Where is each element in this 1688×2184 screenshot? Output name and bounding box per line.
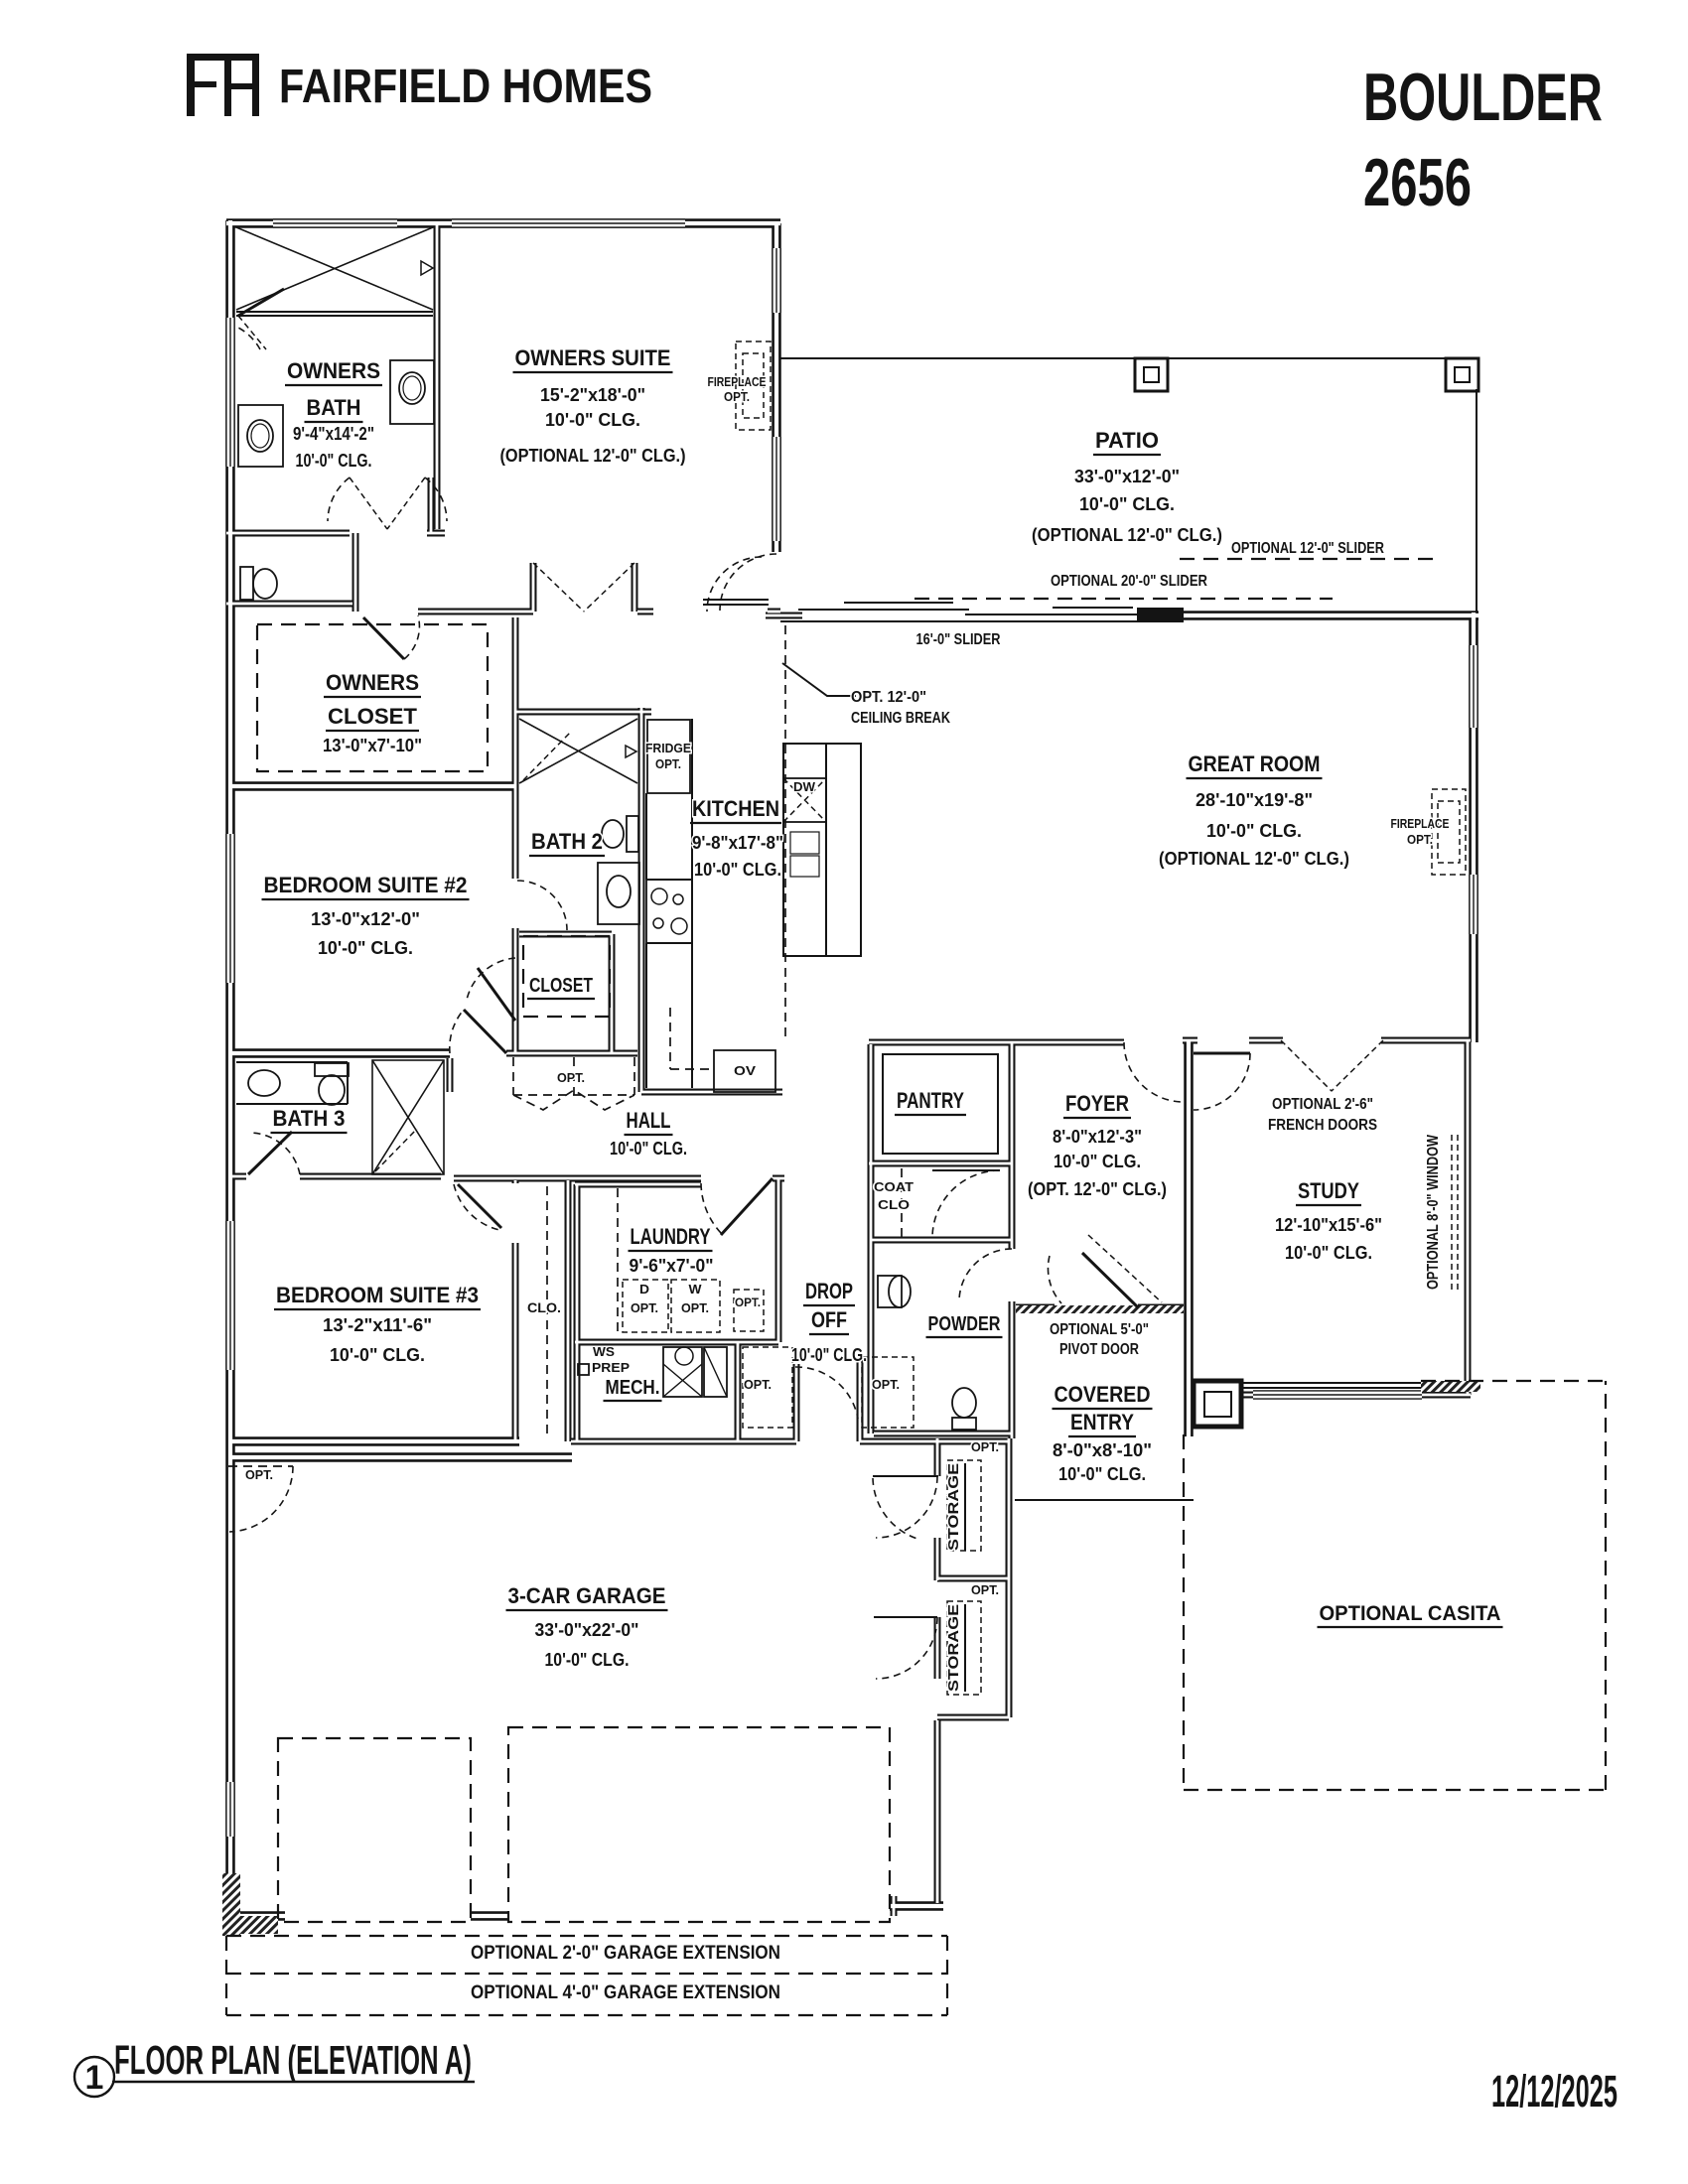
- svg-text:10'-0" CLG.: 10'-0" CLG.: [545, 1650, 630, 1670]
- svg-text:10'-0" CLG.: 10'-0" CLG.: [318, 938, 413, 958]
- svg-text:10'-0" CLG.: 10'-0" CLG.: [330, 1345, 425, 1365]
- svg-text:D: D: [639, 1282, 649, 1297]
- svg-text:STUDY: STUDY: [1298, 1178, 1359, 1203]
- svg-text:BATH 2: BATH 2: [531, 829, 603, 854]
- svg-text:FRENCH DOORS: FRENCH DOORS: [1268, 1117, 1377, 1134]
- svg-text:9'-4"x14'-2": 9'-4"x14'-2": [293, 424, 374, 444]
- svg-text:OPTIONAL 4'-0" GARAGE EXTENSIO: OPTIONAL 4'-0" GARAGE EXTENSION: [471, 1982, 780, 2003]
- svg-text:OPT.: OPT.: [724, 389, 750, 404]
- svg-text:OPTIONAL 2'-6": OPTIONAL 2'-6": [1272, 1096, 1373, 1113]
- svg-text:OPT.: OPT.: [744, 1377, 772, 1392]
- svg-text:(OPTIONAL 12'-0" CLG.): (OPTIONAL 12'-0" CLG.): [1159, 849, 1349, 869]
- svg-text:OPT. 12'-0": OPT. 12'-0": [851, 689, 926, 706]
- svg-text:FLOOR PLAN (ELEVATION A): FLOOR PLAN (ELEVATION A): [114, 2037, 472, 2083]
- svg-text:OPT.: OPT.: [655, 756, 681, 771]
- svg-text:9'-6"x7'-0": 9'-6"x7'-0": [630, 1256, 714, 1276]
- svg-text:OPT.: OPT.: [1407, 832, 1433, 847]
- svg-text:CLOSET: CLOSET: [328, 704, 418, 729]
- svg-text:OPTIONAL 2'-0" GARAGE EXTENSIO: OPTIONAL 2'-0" GARAGE EXTENSION: [471, 1943, 780, 1964]
- svg-text:12'-10"x15'-6": 12'-10"x15'-6": [1275, 1215, 1382, 1235]
- svg-text:3-CAR GARAGE: 3-CAR GARAGE: [508, 1583, 666, 1608]
- svg-text:FOYER: FOYER: [1065, 1091, 1129, 1116]
- svg-text:10'-0" CLG.: 10'-0" CLG.: [791, 1345, 867, 1365]
- svg-text:OV: OV: [734, 1063, 756, 1078]
- svg-text:STORAGE: STORAGE: [945, 1604, 962, 1692]
- svg-text:WS: WS: [593, 1344, 615, 1359]
- svg-text:MECH.: MECH.: [606, 1377, 660, 1399]
- svg-text:(OPTIONAL 12'-0" CLG.): (OPTIONAL 12'-0" CLG.): [500, 446, 686, 466]
- svg-text:OWNERS SUITE: OWNERS SUITE: [515, 345, 671, 370]
- svg-text:1: 1: [85, 2059, 104, 2097]
- svg-text:OFF: OFF: [811, 1307, 847, 1332]
- svg-text:BEDROOM SUITE #2: BEDROOM SUITE #2: [264, 873, 468, 897]
- svg-text:FRIDGE: FRIDGE: [645, 741, 691, 755]
- svg-text:OPT.: OPT.: [245, 1467, 273, 1482]
- svg-text:33'-0"x12'-0": 33'-0"x12'-0": [1074, 467, 1180, 486]
- svg-text:10'-0" CLG.: 10'-0" CLG.: [694, 860, 781, 880]
- svg-text:POWDER: POWDER: [928, 1313, 1001, 1335]
- svg-text:OWNERS: OWNERS: [326, 670, 419, 695]
- svg-text:PIVOT DOOR: PIVOT DOOR: [1059, 1341, 1139, 1358]
- svg-text:13'-0"x12'-0": 13'-0"x12'-0": [311, 909, 420, 929]
- svg-text:OPT.: OPT.: [681, 1300, 709, 1315]
- svg-text:OPTIONAL 8'-0" WINDOW: OPTIONAL 8'-0" WINDOW: [1425, 1134, 1442, 1290]
- svg-text:OPT.: OPT.: [631, 1300, 658, 1315]
- svg-text:HALL: HALL: [627, 1108, 671, 1133]
- svg-text:PATIO: PATIO: [1095, 428, 1159, 453]
- svg-text:2656: 2656: [1363, 145, 1472, 220]
- svg-text:10'-0" CLG.: 10'-0" CLG.: [1285, 1243, 1372, 1263]
- svg-text:CLO: CLO: [878, 1197, 910, 1212]
- svg-text:CLO.: CLO.: [527, 1299, 561, 1315]
- svg-text:FIREPLACE: FIREPLACE: [708, 374, 767, 389]
- svg-text:16'-0" SLIDER: 16'-0" SLIDER: [916, 631, 1001, 648]
- svg-text:12/12/2025: 12/12/2025: [1491, 2066, 1618, 2116]
- svg-text:OPT.: OPT.: [735, 1296, 761, 1309]
- svg-text:OPTIONAL 20'-0" SLIDER: OPTIONAL 20'-0" SLIDER: [1051, 573, 1207, 590]
- svg-text:CEILING BREAK: CEILING BREAK: [851, 710, 950, 727]
- svg-text:CLOSET: CLOSET: [529, 975, 593, 997]
- svg-text:OPT.: OPT.: [557, 1070, 585, 1085]
- svg-text:(OPTIONAL 12'-0" CLG.): (OPTIONAL 12'-0" CLG.): [1032, 525, 1222, 545]
- svg-text:OWNERS: OWNERS: [287, 358, 380, 383]
- svg-text:15'-2"x18'-0": 15'-2"x18'-0": [540, 385, 645, 405]
- svg-text:(OPT. 12'-0" CLG.): (OPT. 12'-0" CLG.): [1028, 1179, 1167, 1199]
- svg-text:OPT.: OPT.: [971, 1582, 999, 1597]
- svg-text:9'-8"x17'-8": 9'-8"x17'-8": [692, 833, 783, 853]
- svg-text:8'-0"x12'-3": 8'-0"x12'-3": [1053, 1127, 1142, 1147]
- svg-text:PREP: PREP: [592, 1360, 630, 1375]
- svg-text:10'-0" CLG.: 10'-0" CLG.: [1079, 494, 1175, 514]
- svg-text:FIREPLACE: FIREPLACE: [1391, 816, 1450, 831]
- svg-text:13'-0"x7'-10": 13'-0"x7'-10": [323, 736, 422, 755]
- svg-text:BOULDER: BOULDER: [1363, 60, 1603, 135]
- svg-text:ENTRY: ENTRY: [1070, 1410, 1134, 1434]
- svg-text:LAUNDRY: LAUNDRY: [631, 1224, 711, 1249]
- svg-text:10'-0" CLG.: 10'-0" CLG.: [1206, 821, 1302, 841]
- svg-text:KITCHEN: KITCHEN: [692, 796, 779, 821]
- svg-text:OPT.: OPT.: [872, 1377, 900, 1392]
- svg-text:8'-0"x8'-10": 8'-0"x8'-10": [1053, 1440, 1152, 1460]
- svg-text:DW: DW: [793, 779, 816, 794]
- svg-text:OPT.: OPT.: [971, 1439, 999, 1454]
- svg-text:STORAGE: STORAGE: [945, 1463, 962, 1551]
- svg-text:OPTIONAL 12'-0" SLIDER: OPTIONAL 12'-0" SLIDER: [1231, 540, 1384, 557]
- svg-text:13'-2"x11'-6": 13'-2"x11'-6": [323, 1315, 432, 1335]
- svg-text:FAIRFIELD HOMES: FAIRFIELD HOMES: [279, 61, 652, 113]
- svg-text:10'-0" CLG.: 10'-0" CLG.: [1058, 1464, 1146, 1484]
- svg-text:GREAT ROOM: GREAT ROOM: [1189, 751, 1321, 776]
- svg-text:10'-0" CLG.: 10'-0" CLG.: [1054, 1152, 1141, 1171]
- svg-text:OPTIONAL 5'-0": OPTIONAL 5'-0": [1050, 1321, 1149, 1338]
- svg-text:33'-0"x22'-0": 33'-0"x22'-0": [535, 1620, 639, 1640]
- svg-text:COAT: COAT: [874, 1179, 914, 1194]
- svg-text:BATH 3: BATH 3: [273, 1106, 346, 1131]
- svg-text:10'-0" CLG.: 10'-0" CLG.: [610, 1139, 687, 1159]
- svg-text:BATH: BATH: [307, 395, 361, 420]
- svg-text:28'-10"x19'-8": 28'-10"x19'-8": [1196, 790, 1313, 810]
- svg-text:BEDROOM SUITE #3: BEDROOM SUITE #3: [276, 1283, 479, 1307]
- svg-text:PANTRY: PANTRY: [897, 1088, 964, 1113]
- svg-text:W: W: [689, 1282, 703, 1297]
- svg-text:10'-0" CLG.: 10'-0" CLG.: [545, 410, 640, 430]
- svg-text:OPTIONAL CASITA: OPTIONAL CASITA: [1320, 1602, 1501, 1625]
- svg-text:10'-0" CLG.: 10'-0" CLG.: [296, 451, 372, 471]
- svg-text:COVERED: COVERED: [1055, 1382, 1151, 1407]
- svg-text:DROP: DROP: [805, 1279, 853, 1303]
